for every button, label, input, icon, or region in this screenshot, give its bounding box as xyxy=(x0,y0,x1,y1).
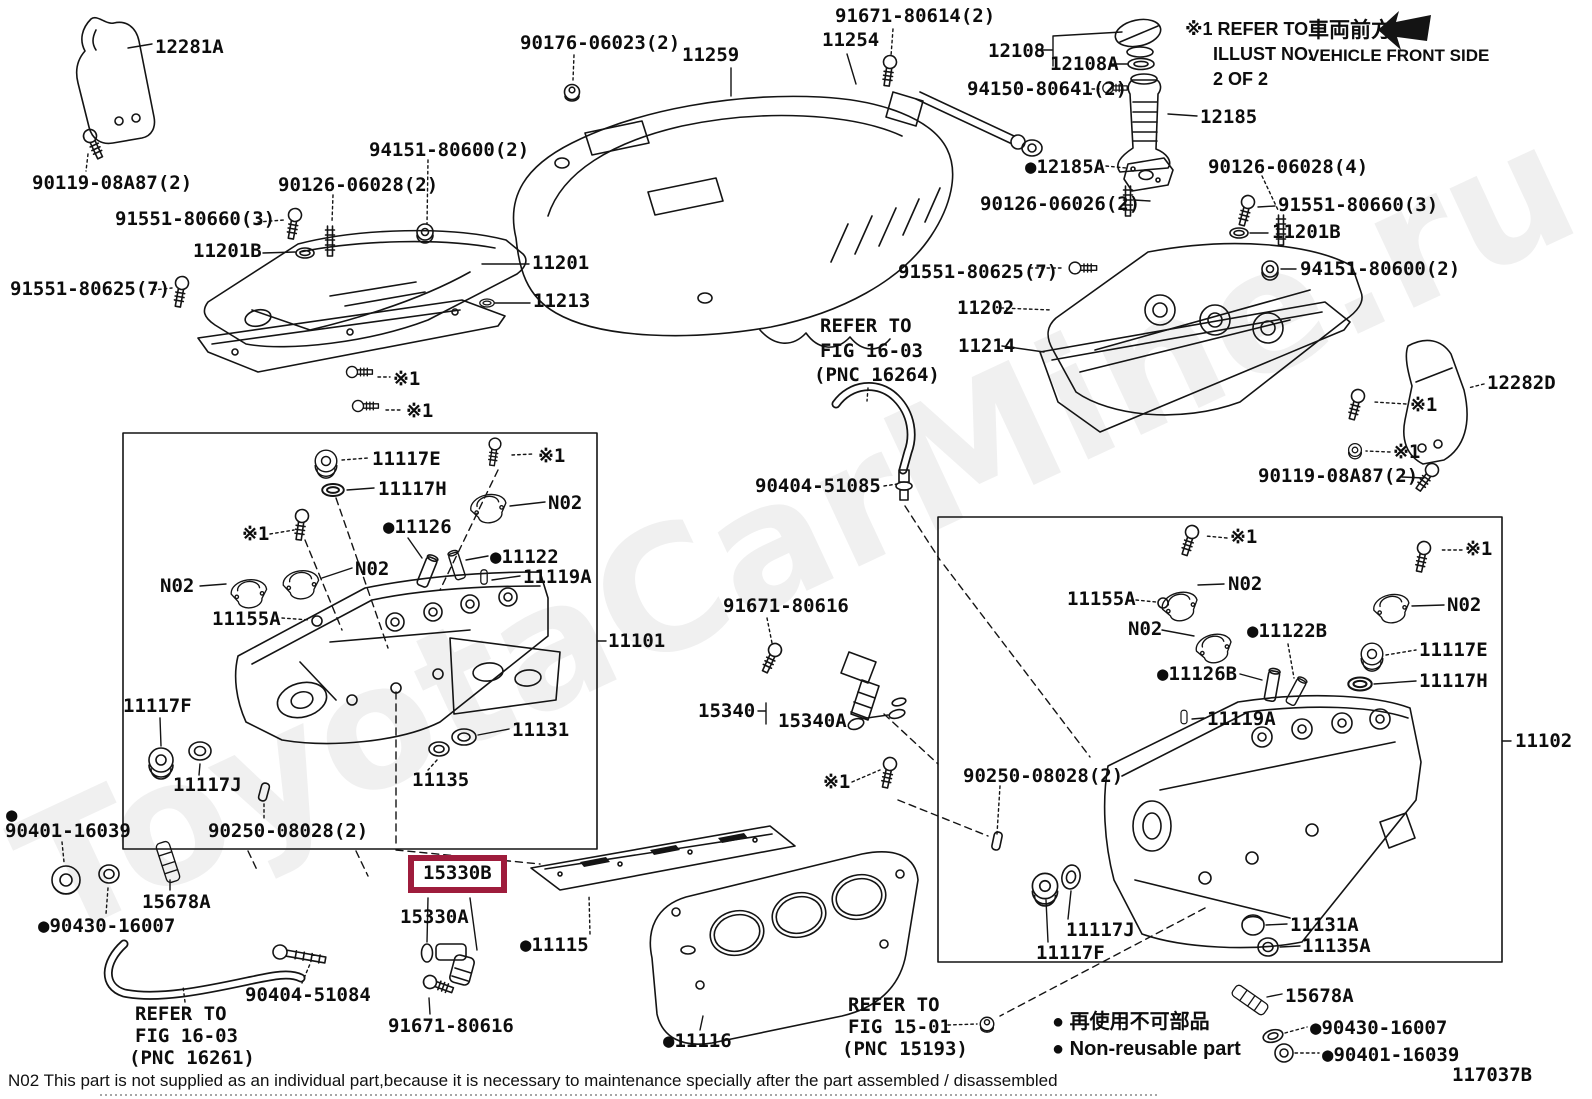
annotation-label: N02 xyxy=(548,494,582,514)
annotation-label: N02 xyxy=(1128,620,1162,640)
part-number-label[interactable]: 11254 xyxy=(822,31,879,51)
part-number-label[interactable]: 90126-06028(4) xyxy=(1208,158,1368,178)
part-number-label[interactable]: 11119A xyxy=(1207,710,1276,730)
part-number-label[interactable]: 94151-80600(2) xyxy=(369,141,529,161)
annotation-label: N02 xyxy=(1447,596,1481,616)
part-number-label[interactable]: ●12185A xyxy=(1025,158,1105,178)
part-number-label[interactable]: 91551-80625(7) xyxy=(898,263,1058,283)
part-number-label[interactable]: 11119A xyxy=(523,568,592,588)
part-number-label[interactable]: 11131A xyxy=(1290,916,1359,936)
part-number-label[interactable]: 90404-51084 xyxy=(245,986,371,1006)
annotation-label: ※1 xyxy=(1393,443,1420,463)
part-number-label[interactable]: 90404-51085 xyxy=(755,477,881,497)
footer-note: N02 This part is not supplied as an indi… xyxy=(8,1071,1058,1091)
part-number-label[interactable]: 90119-08A87(2) xyxy=(1258,467,1418,487)
part-number-label[interactable]: 11135A xyxy=(1302,937,1371,957)
part-number-label[interactable]: 11201 xyxy=(532,254,589,274)
part-number-label[interactable]: 94150-80641(2) xyxy=(967,80,1127,100)
part-number-label[interactable]: 91671-80616 xyxy=(388,1017,514,1037)
part-number-label[interactable]: 11202 xyxy=(957,299,1014,319)
part-number-label[interactable]: 15340 xyxy=(698,702,755,722)
part-number-label[interactable]: 91551-80660(3) xyxy=(1278,196,1438,216)
part-number-label[interactable]: 15330A xyxy=(400,908,469,928)
part-number-label[interactable]: 11201B xyxy=(193,242,262,262)
part-number-label[interactable]: ●90430-16007 xyxy=(1310,1019,1447,1039)
annotation-label: ※1 xyxy=(1230,528,1257,548)
part-number-label[interactable]: ●90401-16039 xyxy=(1322,1046,1459,1066)
annotation-label: FIG 16-03 xyxy=(135,1027,238,1047)
part-number-label[interactable]: ●11126B xyxy=(1157,665,1237,685)
part-number-label[interactable]: 90401-16039 xyxy=(5,822,131,842)
part-number-label[interactable]: ●11122B xyxy=(1247,622,1327,642)
part-number-label[interactable]: 11101 xyxy=(608,632,665,652)
part-number-label[interactable]: 11213 xyxy=(533,292,590,312)
part-number-label[interactable]: 94151-80600(2) xyxy=(1300,260,1460,280)
part-number-label[interactable]: ●11115 xyxy=(520,936,589,956)
annotation-label: ※1 xyxy=(1410,396,1437,416)
annotation-label: N02 xyxy=(160,577,194,597)
part-number-label[interactable]: 11117F xyxy=(123,697,192,717)
part-number-label[interactable]: 11117E xyxy=(372,450,441,470)
part-number-label[interactable]: 11117F xyxy=(1036,944,1105,964)
part-number-label[interactable]: 91671-80614(2) xyxy=(835,7,995,27)
part-number-label[interactable]: 90250-08028(2) xyxy=(963,767,1123,787)
part-number-label[interactable]: ●11126 xyxy=(383,518,452,538)
annotation-label: FIG 15-01 xyxy=(848,1018,951,1038)
part-number-label[interactable]: 91551-80625(7) xyxy=(10,280,170,300)
annotation-label: ※1 xyxy=(393,370,420,390)
part-number-label[interactable]: 90250-08028(2) xyxy=(208,822,368,842)
part-number-label[interactable]: 11117J xyxy=(173,776,242,796)
annotation-label: ※1 xyxy=(538,447,565,467)
annotation-label: (PNC 16264) xyxy=(814,366,940,386)
annotation-label: N02 xyxy=(355,560,389,580)
annotation-label: ※1 xyxy=(823,773,850,793)
annotation-label: REFER TO xyxy=(848,996,940,1016)
part-number-label[interactable]: 11117H xyxy=(1419,672,1488,692)
part-number-label[interactable]: 11155A xyxy=(1067,590,1136,610)
part-number-label[interactable]: ●11116 xyxy=(663,1032,732,1052)
annotation-label: REFER TO xyxy=(820,317,912,337)
part-number-label[interactable]: 12108A xyxy=(1050,55,1119,75)
annotation-label: (PNC 15193) xyxy=(842,1040,968,1060)
part-number-label[interactable]: 90176-06023(2) xyxy=(520,34,680,54)
part-number-label[interactable]: 12282D xyxy=(1487,374,1556,394)
part-number-label[interactable]: 11259 xyxy=(682,46,739,66)
part-number-label[interactable]: 90126-06026(2) xyxy=(980,195,1140,215)
annotation-label: ※1 xyxy=(1465,540,1492,560)
part-number-label[interactable]: 15678A xyxy=(1285,987,1354,1007)
part-number-label[interactable]: 90119-08A87(2) xyxy=(32,174,192,194)
part-number-label[interactable]: 11117E xyxy=(1419,641,1488,661)
part-number-label[interactable]: 11102 xyxy=(1515,732,1572,752)
parts-catalog-figure: ToyotaCarMine.ru xyxy=(0,0,1592,1099)
part-number-label[interactable]: 12108 xyxy=(988,42,1045,62)
annotation-label: ※1 xyxy=(406,402,433,422)
part-number-label[interactable]: 11131 xyxy=(512,721,569,741)
annotation-label: ※1 xyxy=(242,525,269,545)
highlighted-part-label[interactable]: 15330B xyxy=(408,855,507,893)
annotation-label: (PNC 16261) xyxy=(129,1049,255,1069)
part-number-label[interactable]: 11214 xyxy=(958,337,1015,357)
part-number-label[interactable]: 90126-06028(2) xyxy=(278,176,438,196)
part-number-label[interactable]: 12185 xyxy=(1200,108,1257,128)
part-number-label[interactable]: 15678A xyxy=(142,893,211,913)
annotation-label: REFER TO xyxy=(135,1005,227,1025)
part-number-label[interactable]: 91551-80660(3) xyxy=(115,210,275,230)
part-number-label[interactable]: 11201B xyxy=(1272,223,1341,243)
part-number-label[interactable]: 11117H xyxy=(378,480,447,500)
annotation-label: FIG 16-03 xyxy=(820,342,923,362)
part-number-label[interactable]: 11117J xyxy=(1066,921,1135,941)
part-number-label[interactable]: ●11122 xyxy=(490,548,559,568)
part-number-label[interactable]: 12281A xyxy=(155,38,224,58)
part-number-label[interactable]: 11155A xyxy=(212,610,281,630)
annotation-label: N02 xyxy=(1228,575,1262,595)
part-number-label[interactable]: ●90430-16007 xyxy=(38,917,175,937)
part-number-label[interactable]: 91671-80616 xyxy=(723,597,849,617)
part-number-label[interactable]: 11135 xyxy=(412,771,469,791)
labels-layer: 12281A90119-08A87(2)91551-80660(3)11201B… xyxy=(0,0,1592,1099)
part-number-label[interactable]: 15340A xyxy=(778,712,847,732)
